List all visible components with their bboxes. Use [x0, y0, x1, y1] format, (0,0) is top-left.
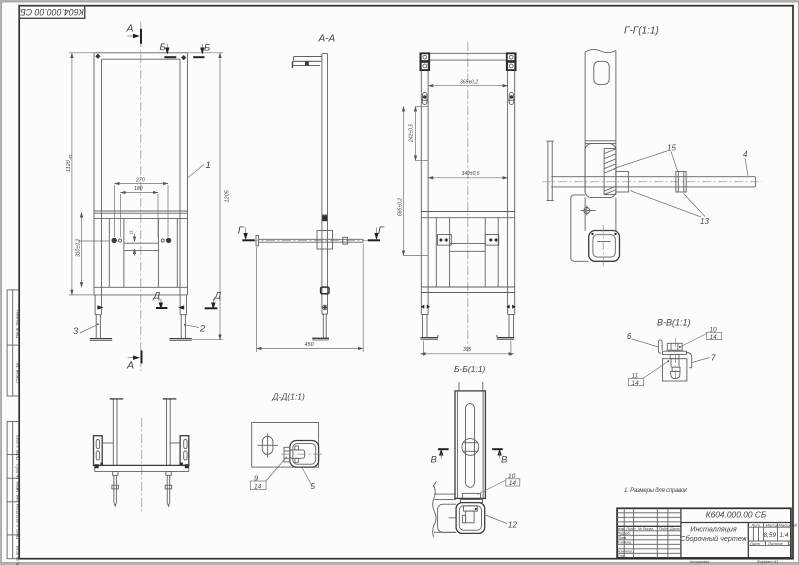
svg-text:Разраб.: Разраб. [618, 531, 631, 535]
svg-text:В: В [431, 455, 438, 466]
svg-text:7: 7 [711, 354, 716, 363]
svg-text:2: 2 [199, 324, 206, 335]
svg-text:1: 1 [206, 160, 211, 171]
svg-text:1:4: 1:4 [780, 532, 789, 539]
svg-text:310±0,2: 310±0,2 [76, 239, 82, 257]
svg-text:365±0,2: 365±0,2 [460, 79, 478, 85]
svg-text:К604.000.00 СБ: К604.000.00 СБ [20, 7, 84, 17]
svg-text:А: А [126, 360, 134, 372]
svg-text:№ докум.: № докум. [638, 527, 654, 531]
svg-text:Утв.: Утв. [618, 554, 626, 558]
svg-text:180: 180 [134, 186, 143, 192]
svg-text:14: 14 [632, 380, 640, 387]
svg-text:15: 15 [667, 144, 676, 153]
svg-text:Масса: Масса [766, 522, 779, 527]
svg-text:13: 13 [700, 217, 709, 226]
svg-text:Масштаб: Масштаб [779, 522, 798, 527]
svg-text:Д: Д [214, 291, 222, 302]
svg-text:11: 11 [129, 230, 134, 234]
svg-text:Инв. № подл.: Инв. № подл. [15, 545, 20, 565]
svg-text:Пров.: Пров. [618, 536, 627, 540]
svg-text:Д-Д(1:1): Д-Д(1:1) [272, 392, 305, 402]
svg-text:Взам. инв. №: Взам. инв. № [15, 487, 20, 513]
svg-text:Перв. примен.: Перв. примен. [15, 309, 20, 338]
svg-text:14: 14 [254, 484, 262, 491]
svg-text:Д: Д [153, 291, 161, 302]
svg-text:Дата: Дата [669, 527, 679, 531]
svg-text:450: 450 [305, 342, 315, 348]
svg-text:В-В(1:1): В-В(1:1) [657, 318, 691, 328]
svg-text:270: 270 [135, 177, 145, 183]
svg-text:Т.контр.: Т.контр. [618, 540, 633, 544]
svg-text:242±0,5: 242±0,5 [409, 124, 415, 143]
svg-text:Б: Б [204, 42, 210, 53]
svg-text:Инсталляция: Инсталляция [690, 525, 737, 534]
svg-text:Б-Б(1:1): Б-Б(1:1) [454, 364, 486, 374]
svg-text:Подп. и дата: Подп. и дата [15, 514, 20, 539]
svg-text:Подп. и дата: Подп. и дата [15, 434, 20, 459]
svg-text:685±0,2: 685±0,2 [398, 198, 404, 216]
svg-text:Справ. №: Справ. № [15, 363, 20, 383]
svg-text:6: 6 [627, 332, 632, 341]
svg-text:Подп.: Подп. [659, 527, 669, 531]
svg-text:В: В [501, 455, 508, 466]
svg-text:1205: 1205 [225, 189, 231, 202]
svg-text:349±0,5: 349±0,5 [462, 171, 480, 177]
svg-text:Лит.: Лит. [751, 522, 761, 527]
svg-text:Копировал: Копировал [690, 559, 710, 564]
svg-text:А-А: А-А [318, 34, 336, 45]
svg-text:Г-Г(1:1): Г-Г(1:1) [624, 26, 659, 37]
svg-text:5: 5 [311, 482, 316, 491]
svg-text:Сборочный чертеж: Сборочный чертеж [680, 534, 747, 543]
svg-text:Б: Б [160, 42, 166, 53]
svg-text:А: А [126, 23, 134, 35]
svg-text:Изм. Лист: Изм. Лист [618, 527, 636, 531]
svg-text:4: 4 [743, 150, 748, 159]
svg-text:3: 3 [73, 326, 79, 337]
svg-text:14: 14 [710, 334, 718, 341]
svg-text:8,59: 8,59 [764, 532, 777, 539]
svg-text:Н.контр.: Н.контр. [618, 549, 633, 553]
svg-text:14: 14 [509, 480, 517, 487]
svg-text:1. Размеры для справок: 1. Размеры для справок [624, 488, 688, 494]
svg-text:12: 12 [508, 521, 517, 530]
svg-text:Формат А3: Формат А3 [757, 559, 779, 564]
svg-text:Инв. № дубл.: Инв. № дубл. [15, 463, 20, 489]
svg-text:395: 395 [463, 347, 472, 353]
svg-text:К604.000.00 СБ: К604.000.00 СБ [706, 510, 767, 520]
